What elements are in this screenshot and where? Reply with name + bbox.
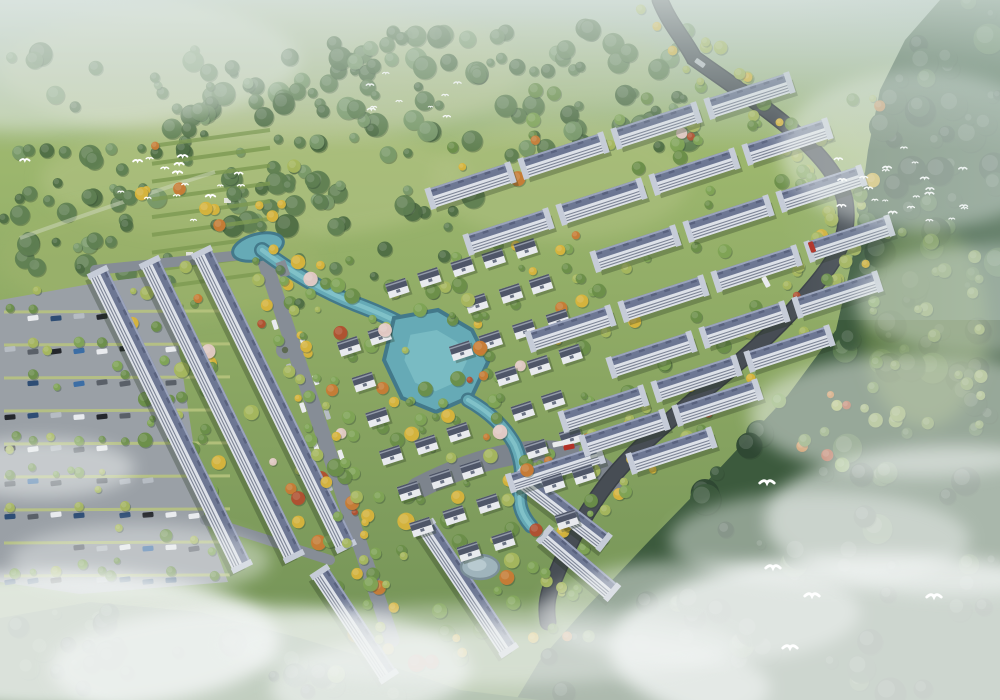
mist-cloud [10, 524, 270, 596]
egret-bird [175, 163, 184, 164]
right-atmosphere-haze [780, 0, 1000, 320]
parked-car [165, 380, 176, 386]
egret-bird [237, 185, 244, 186]
parked-car [27, 380, 38, 386]
aerial-rendering-stage [0, 0, 1000, 700]
egret-bird [190, 219, 196, 220]
parked-car [27, 349, 38, 355]
mist-cloud [220, 605, 740, 685]
egret-bird [20, 159, 29, 161]
egret-bird [218, 185, 224, 186]
parked-car [4, 514, 15, 520]
residential-masterplan-rendering [0, 0, 1000, 700]
egret-bird [206, 195, 215, 197]
parked-car [119, 413, 130, 419]
egret-bird [805, 594, 819, 596]
egret-bird [133, 160, 142, 161]
parked-car [142, 512, 153, 518]
egret-bird [173, 171, 182, 173]
parked-car [50, 315, 61, 321]
egret-bird [161, 167, 169, 168]
parked-car [73, 512, 84, 518]
egret-bird [118, 191, 124, 192]
parked-car [96, 413, 107, 419]
parked-car [27, 514, 38, 520]
egret-bird [146, 158, 153, 159]
mist-cloud [670, 492, 970, 588]
egret-bird [145, 197, 151, 198]
egret-bird [766, 566, 780, 568]
parked-car [73, 313, 84, 319]
egret-bird [783, 646, 797, 648]
egret-bird [760, 481, 774, 483]
egret-bird [178, 155, 188, 157]
parked-car [73, 414, 84, 420]
egret-bird [173, 195, 179, 196]
parked-car [4, 414, 15, 420]
egret-bird [927, 595, 941, 597]
egret-bird [182, 184, 189, 185]
egret-bird [235, 172, 243, 173]
